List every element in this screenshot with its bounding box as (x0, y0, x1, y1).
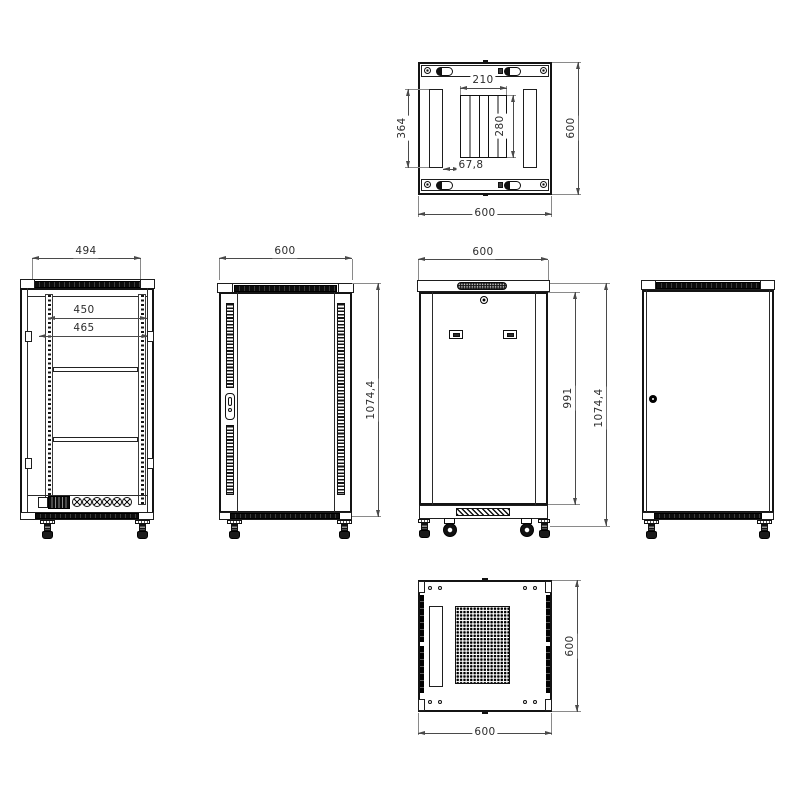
base-vent-strip (230, 513, 340, 519)
keyhole-icon (228, 408, 232, 412)
dim-width-label: 600 (472, 208, 497, 220)
mounting-hole (533, 586, 537, 590)
outlet-icon (92, 497, 102, 507)
mounting-hole (533, 700, 537, 704)
hinge (147, 458, 154, 469)
rack-rail (138, 294, 146, 505)
mounting-hole (438, 586, 442, 590)
cabinet-body (219, 292, 352, 513)
outlet-icon (122, 497, 132, 507)
side-view (635, 245, 785, 550)
cabinet-body (419, 292, 548, 505)
mounting-hole (438, 700, 442, 704)
dim-vent-length-label: 364 (397, 115, 409, 140)
edge-rail (546, 595, 550, 642)
door-vent (226, 425, 234, 495)
center-mark (482, 578, 488, 580)
front-view: 600 1074,4 (210, 245, 400, 550)
hinge (25, 458, 32, 469)
dim-fan-width-label: 210 (470, 75, 495, 87)
outlet-icon (72, 497, 82, 507)
mounting-hole (523, 700, 527, 704)
dim-opening-width-label: 465 (71, 323, 96, 335)
edge-rail (420, 595, 424, 642)
center-mark (483, 194, 488, 196)
leveling-foot (40, 520, 55, 539)
top-view: 210 280 364 67,8 600 600 (400, 55, 600, 230)
dim-width-label: 600 (472, 727, 497, 739)
corner-bolt-icon (540, 67, 547, 74)
latch-icon (498, 182, 503, 188)
edge-rail (420, 646, 424, 693)
corner-bracket (545, 699, 552, 711)
corner-bolt-icon (424, 181, 431, 188)
outlet-icon (102, 497, 112, 507)
door-handle (225, 393, 235, 420)
dim-height-label: 1074,4 (366, 378, 378, 421)
cable-slot (523, 89, 537, 168)
lifting-handle-icon (436, 181, 453, 190)
caster-wheel (518, 518, 535, 537)
rack-rail (45, 294, 53, 505)
shelf (53, 437, 138, 442)
door-vent (337, 303, 345, 495)
cable-slot (429, 606, 443, 687)
dim-depth-label: 600 (566, 115, 578, 140)
mounting-hole (428, 586, 432, 590)
dim-width-label: 600 (470, 247, 495, 259)
front-open-view: 494 450 465 (15, 245, 215, 550)
leveling-foot (538, 519, 550, 538)
lifting-handle-icon (436, 67, 453, 76)
mounting-hole (523, 586, 527, 590)
top-vent-strip (234, 285, 337, 292)
side-panel (642, 290, 774, 513)
corner-bracket (545, 581, 552, 593)
base-vent-strip (654, 513, 762, 519)
center-mark (482, 712, 488, 714)
top-vent-mesh (457, 282, 507, 290)
corner-bolt-icon (424, 67, 431, 74)
leveling-foot (135, 520, 150, 539)
pdu-switch (38, 497, 48, 508)
vent-mesh (455, 606, 510, 684)
hinge (25, 331, 32, 342)
pdu-block (48, 496, 70, 509)
base-vent-mesh (456, 508, 510, 516)
lifting-handle-icon (504, 181, 521, 190)
dim-offset-label: 67,8 (457, 160, 486, 172)
dim-body-height-label: 991 (563, 385, 575, 410)
side-panel-lock (649, 395, 657, 403)
top-vent-strip (34, 281, 141, 288)
mounting-hole (428, 700, 432, 704)
dim-height-label: 1074,4 (594, 386, 606, 429)
leveling-foot (644, 520, 659, 539)
edge-rail (546, 646, 550, 693)
dim-rail-width-label: 450 (71, 305, 96, 317)
dim-depth-label: 600 (565, 633, 577, 658)
dim-width-label: 600 (272, 246, 297, 258)
caster-wheel (441, 518, 458, 537)
hinge (147, 331, 154, 342)
latch-icon (498, 68, 503, 74)
lifting-handle-icon (504, 67, 521, 76)
bottom-view: 600 600 (410, 570, 600, 760)
cable-slot (429, 89, 443, 168)
cable-cutout (449, 330, 463, 339)
shelf (53, 367, 138, 372)
center-mark (483, 60, 488, 62)
corner-bolt-icon (540, 181, 547, 188)
dim-frame-width-label: 494 (73, 246, 98, 258)
rear-door-lock (480, 296, 488, 304)
outlet-icon (112, 497, 122, 507)
leveling-foot (418, 519, 430, 538)
leveling-foot (757, 520, 772, 539)
leveling-foot (337, 520, 352, 539)
outlet-icon (82, 497, 92, 507)
rear-view: 600 991 1074,4 (410, 245, 620, 550)
cable-cutout (503, 330, 517, 339)
door-vent (226, 303, 234, 388)
pdu-outlets (72, 497, 132, 507)
corner-bracket (418, 581, 425, 593)
cap-corner (641, 280, 656, 290)
cap-corner (760, 280, 775, 290)
corner-bracket (418, 699, 425, 711)
dim-fan-depth-label: 280 (495, 113, 507, 138)
top-vent-strip (656, 282, 760, 289)
technical-drawing: 210 280 364 67,8 600 600 494 (0, 0, 800, 800)
leveling-foot (227, 520, 242, 539)
base-vent-strip (35, 513, 139, 519)
